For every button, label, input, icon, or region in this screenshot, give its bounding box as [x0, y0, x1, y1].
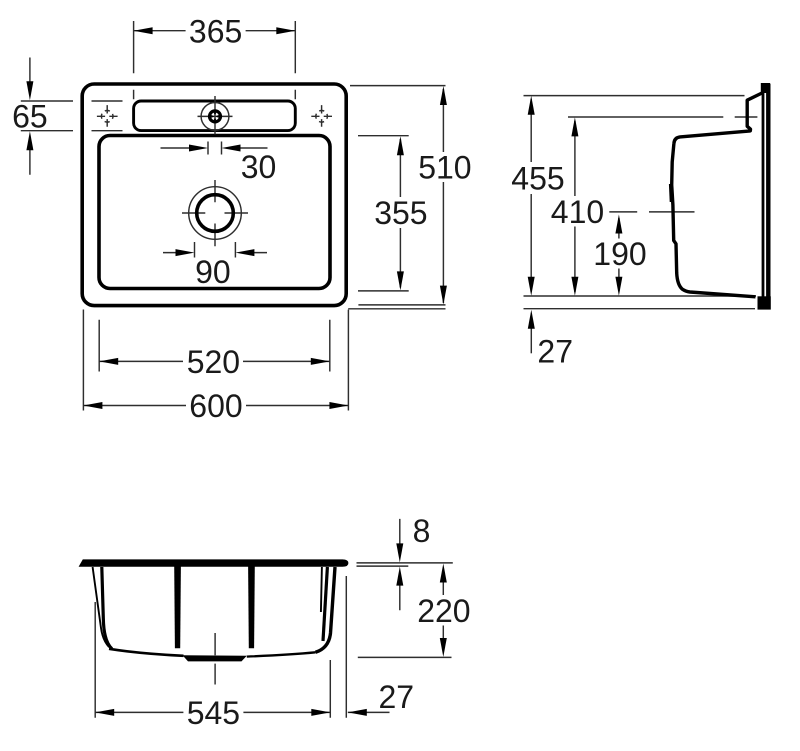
svg-text:65: 65 — [12, 99, 48, 135]
svg-text:365: 365 — [189, 13, 242, 49]
svg-text:190: 190 — [593, 236, 646, 272]
svg-text:90: 90 — [195, 254, 231, 290]
svg-text:27: 27 — [379, 679, 415, 715]
svg-text:355: 355 — [374, 195, 427, 231]
svg-text:410: 410 — [551, 194, 604, 230]
svg-text:455: 455 — [511, 161, 564, 197]
svg-text:520: 520 — [187, 344, 240, 380]
svg-text:30: 30 — [241, 149, 277, 185]
svg-text:510: 510 — [418, 149, 471, 185]
svg-text:8: 8 — [413, 513, 431, 549]
svg-text:545: 545 — [187, 695, 240, 731]
svg-text:220: 220 — [417, 593, 470, 629]
svg-text:27: 27 — [537, 333, 573, 369]
svg-text:600: 600 — [189, 388, 242, 424]
